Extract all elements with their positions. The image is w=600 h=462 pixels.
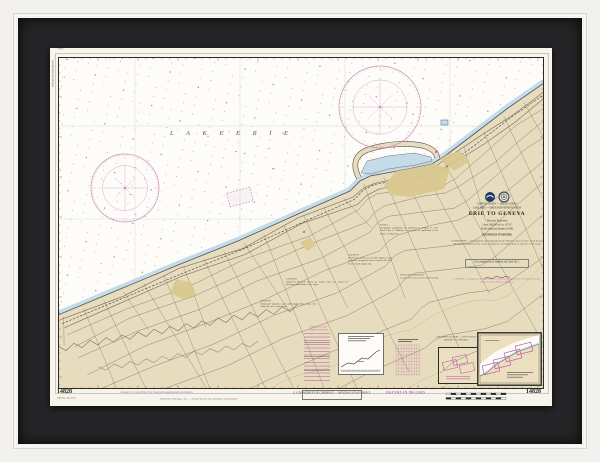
chart-number-left: 14828 — [57, 389, 72, 395]
datum-line: North American Datum of 1983 — [481, 228, 513, 231]
conversion-table — [395, 338, 421, 383]
scale-bar — [444, 390, 508, 408]
profile-diagram — [338, 333, 384, 380]
chart-paper: 14828 SOUNDINGS IN METERS L A K E E R I … — [50, 48, 552, 406]
caution-note: CAUTION — Temporary changes or defects i… — [452, 278, 542, 294]
title-eyebrow-1: UNITED STATES — GREAT LAKES — [477, 203, 516, 206]
chart-note: CAUTION Improved channels shown by broke… — [286, 278, 348, 300]
index-inset-large — [477, 332, 542, 391]
framed-nautical-chart: 14828 SOUNDINGS IN METERS L A K E E R I … — [0, 0, 600, 462]
index-inset-small — [438, 347, 479, 389]
chart-number-right: 14828 — [526, 389, 541, 395]
left-margin-note: SOUNDINGS IN METERS — [51, 60, 53, 87]
symbols-legend: SYMBOLS AND ABBREVIATIONS — [304, 326, 332, 384]
info-box: For complete list of symbols see Chart N… — [465, 259, 529, 268]
chart-note: POLLUTION REPORTS Contact the nearest Co… — [400, 274, 452, 288]
index-inset-small-svg — [438, 347, 479, 384]
lake-name-label: L A K E E R I E — [170, 130, 294, 137]
projection-line: Mercator Projection — [487, 220, 507, 223]
index-inset-large-svg — [477, 332, 542, 386]
depths-label: DEPTHS IN METERS — [386, 391, 425, 395]
edition-note: 24th Ed., Apr. 2013 — [57, 397, 76, 399]
title-block: UNITED STATES — GREAT LAKES LAKE ERIE — … — [442, 190, 552, 300]
soundings-line: SOUNDINGS IN METERS — [482, 234, 512, 237]
authorities-note: AUTHORITIES — Hydrography and topography… — [449, 240, 545, 258]
scale-bar-svg — [444, 392, 508, 403]
noaa-logo-icon — [483, 191, 511, 203]
chart-note: NOTE A Navigation regulations are publis… — [380, 224, 438, 253]
bottom-magenta-note: Consult U.S. Coast Pilot 6 for important… — [120, 391, 309, 394]
chart-title: ERIE TO GENEVA — [469, 211, 526, 217]
legend-rows — [304, 333, 330, 383]
chart-note: CAUTION Submerged pipelines and submerge… — [260, 300, 316, 322]
profile-diagram-svg — [338, 333, 384, 375]
scale-line: Scale 1:80,000 at Lat. 42°15' — [482, 224, 511, 227]
title-eyebrow-2: LAKE ERIE — OHIO AND PENNSYLVANIA — [473, 207, 522, 210]
publisher-box: U.S. DEPARTMENT OF COMMERCE — NATIONAL O… — [302, 390, 362, 400]
conversion-table-svg — [395, 338, 421, 378]
chart-note: CAUTION Limitations on the use of radio … — [348, 254, 392, 283]
top-margin-note: 14828 — [57, 48, 63, 51]
